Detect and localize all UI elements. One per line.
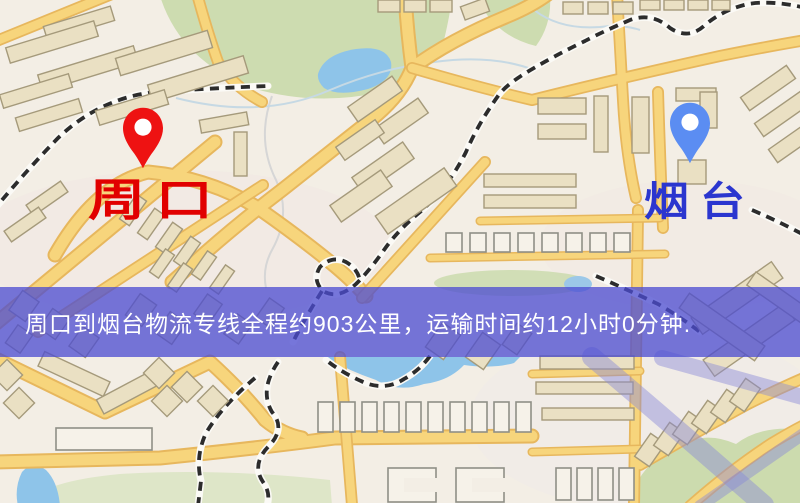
- destination-pin[interactable]: [667, 101, 713, 165]
- origin-city-label: 周口: [88, 179, 223, 223]
- map-canvas: [0, 0, 800, 503]
- route-map: 周口到烟台物流专线全程约903公里，运输时间约12小时0分钟. 周口 烟台: [0, 0, 800, 503]
- route-info-text: 周口到烟台物流专线全程约903公里，运输时间约12小时0分钟.: [25, 305, 691, 339]
- destination-city-label: 烟台: [644, 182, 756, 222]
- origin-pin[interactable]: [120, 106, 166, 170]
- origin-pin-icon: [120, 106, 166, 170]
- destination-pin-icon: [667, 101, 713, 165]
- route-info-banner: 周口到烟台物流专线全程约903公里，运输时间约12小时0分钟.: [0, 287, 800, 357]
